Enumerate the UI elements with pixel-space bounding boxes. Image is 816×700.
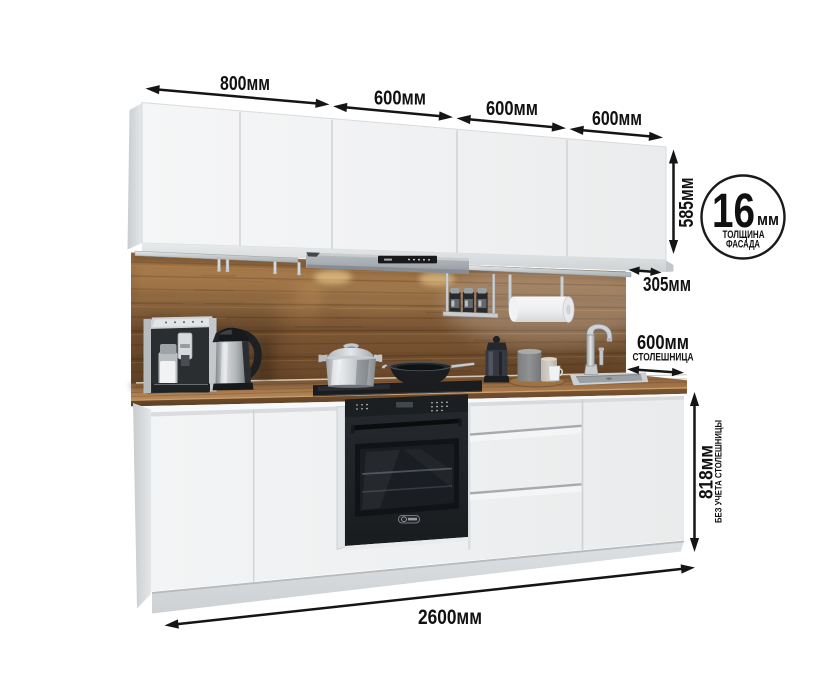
svg-text:мм: мм <box>757 210 779 229</box>
svg-text:585мм: 585мм <box>675 178 698 228</box>
svg-text:600мм: 600мм <box>592 107 642 130</box>
svg-text:800мм: 800мм <box>220 72 270 95</box>
svg-text:600мм: 600мм <box>486 97 538 120</box>
svg-text:2600мм: 2600мм <box>418 605 482 629</box>
svg-text:ФАСАДА: ФАСАДА <box>726 238 760 250</box>
svg-text:600мм: 600мм <box>374 87 426 110</box>
svg-text:305мм: 305мм <box>643 273 691 296</box>
svg-text:СТОЛЕШНИЦА: СТОЛЕШНИЦА <box>633 352 694 364</box>
svg-text:БЕЗ УЧЕТА СТОЛЕШНИЦЫ: БЕЗ УЧЕТА СТОЛЕШНИЦЫ <box>714 420 724 523</box>
